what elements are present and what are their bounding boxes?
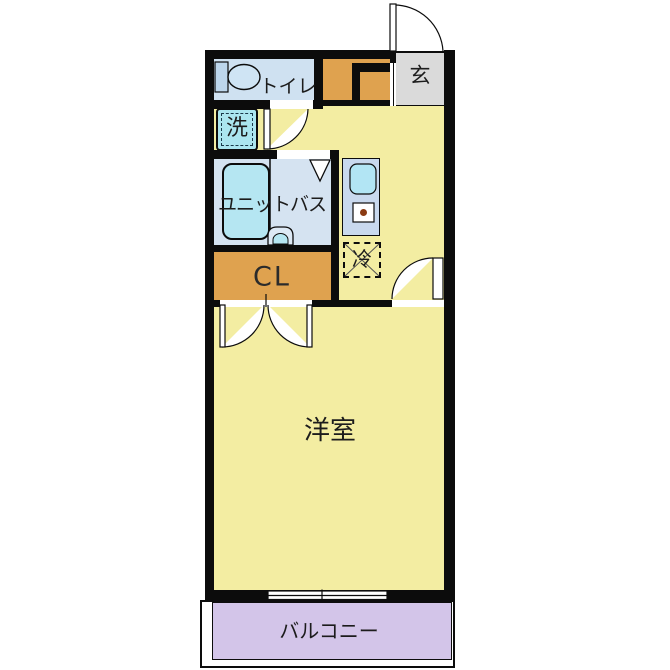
toilet-door-sill	[270, 100, 313, 109]
kitchen-counter	[342, 158, 380, 236]
closet-door-sill	[220, 300, 312, 307]
label-laundry: 洗	[226, 118, 248, 140]
room-door-sill	[392, 300, 444, 307]
western-room	[214, 307, 444, 590]
label-refrigerator: 冷	[352, 249, 372, 269]
shoe-storage-wall-horizontal	[352, 63, 390, 72]
bath-door-sill	[277, 150, 330, 159]
floor-plan-canvas: 玄 トイレ 洗 ユニットバス 冷 CL 洋室 バルコニー	[0, 0, 670, 670]
label-balcony: バルコニー	[279, 621, 379, 641]
label-western-room: 洋室	[304, 418, 356, 444]
label-closet: CL	[253, 264, 291, 291]
label-unit-bath: ユニットバス	[218, 196, 326, 215]
hallway-upper	[323, 106, 444, 150]
entrance-door-icon	[390, 4, 443, 51]
storage-door-track-line	[393, 63, 394, 106]
label-toilet: トイレ	[259, 78, 316, 97]
label-entrance: 玄	[410, 66, 431, 87]
